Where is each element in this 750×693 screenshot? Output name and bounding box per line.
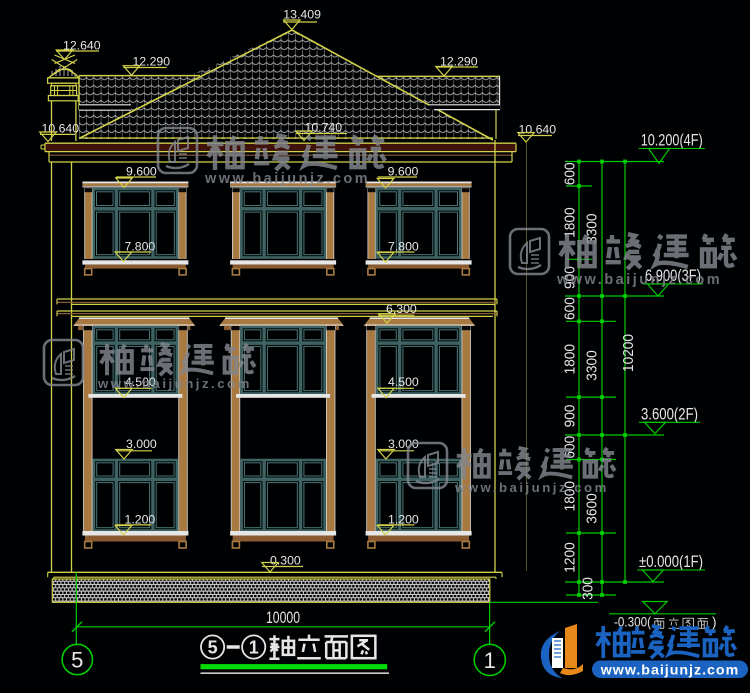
- svg-text:4.500: 4.500: [388, 375, 419, 389]
- svg-text:5: 5: [208, 638, 218, 658]
- svg-text:1.200: 1.200: [125, 512, 156, 526]
- svg-text:1200: 1200: [562, 542, 579, 572]
- svg-text:www.baijunjz.com: www.baijunjz.com: [97, 376, 252, 391]
- svg-text:900: 900: [562, 405, 579, 428]
- svg-text:0.300: 0.300: [270, 554, 301, 568]
- svg-text:www.baijunjz.com: www.baijunjz.com: [600, 662, 739, 678]
- svg-text:10.740: 10.740: [305, 121, 343, 135]
- svg-text:600: 600: [562, 162, 579, 185]
- svg-text:300: 300: [580, 577, 597, 600]
- svg-text:www.baijunjz.com: www.baijunjz.com: [556, 272, 722, 288]
- svg-text:10.640: 10.640: [42, 122, 80, 136]
- svg-text:www.baijunjz.com: www.baijunjz.com: [204, 171, 370, 187]
- svg-text:12.290: 12.290: [133, 55, 171, 69]
- svg-text:3300: 3300: [584, 350, 601, 380]
- svg-text:5: 5: [71, 648, 83, 673]
- svg-text:10.640: 10.640: [519, 123, 557, 137]
- svg-text:1: 1: [249, 638, 259, 658]
- svg-text:1.200: 1.200: [388, 512, 419, 526]
- svg-text:1800: 1800: [562, 207, 579, 237]
- svg-text:10.200(4F): 10.200(4F): [641, 132, 703, 150]
- svg-text:±0.000(1F): ±0.000(1F): [639, 553, 703, 571]
- svg-text:): ): [712, 615, 717, 630]
- svg-text:3600: 3600: [584, 493, 601, 523]
- svg-text:3.600(2F): 3.600(2F): [641, 405, 698, 423]
- svg-text:1800: 1800: [562, 344, 579, 374]
- svg-text:10200: 10200: [620, 334, 637, 372]
- svg-text:10000: 10000: [266, 609, 300, 627]
- svg-text:www.baijunjz.com: www.baijunjz.com: [454, 480, 609, 495]
- svg-text:1: 1: [484, 648, 496, 673]
- svg-text:600: 600: [562, 297, 579, 320]
